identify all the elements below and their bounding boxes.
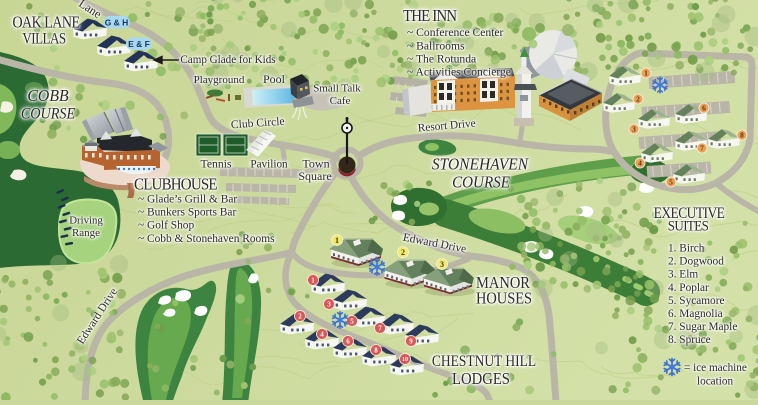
svg-text:6: 6 [346,338,350,346]
svg-text:2. Dogwood: 2. Dogwood [668,256,724,268]
svg-text:~ Ballrooms: ~ Ballrooms [407,40,465,53]
svg-text:G & H: G & H [105,17,129,27]
svg-text:COBB: COBB [27,85,68,105]
svg-text:SUITES: SUITES [668,219,708,235]
svg-text:= ice machine: = ice machine [684,362,747,374]
svg-text:Driving: Driving [69,215,103,227]
svg-text:6. Magnolia: 6. Magnolia [668,308,723,320]
svg-text:~ The Rotunda: ~ The Rotunda [407,53,476,66]
svg-text:~ Glade’s Grill & Bar: ~ Glade’s Grill & Bar [138,194,237,206]
svg-text:2: 2 [636,95,640,104]
svg-text:8. Spruce: 8. Spruce [668,334,711,346]
svg-text:8: 8 [740,131,744,140]
svg-text:~ Bunkers Sports Bar: ~ Bunkers Sports Bar [138,207,236,219]
svg-text:8: 8 [374,347,378,355]
svg-text:4. Poplar: 4. Poplar [668,282,709,294]
svg-text:7: 7 [700,144,704,153]
svg-text:COURSE: COURSE [21,106,75,123]
svg-text:~ Conference Center: ~ Conference Center [407,26,504,39]
svg-text:Square: Square [298,169,331,183]
svg-text:VILLAS: VILLAS [22,31,66,48]
svg-text:2: 2 [298,313,302,321]
svg-text:Cafe: Cafe [330,95,351,107]
svg-text:5. Sycamore: 5. Sycamore [668,295,724,307]
svg-text:COURSE: COURSE [452,174,510,192]
svg-text:1. Birch: 1. Birch [668,243,705,255]
svg-text:Camp Glade for Kids: Camp Glade for Kids [180,54,275,66]
svg-text:Tennis: Tennis [201,158,232,171]
svg-text:3: 3 [440,260,444,269]
svg-text:1: 1 [335,236,339,245]
svg-text:CHESTNUT HILL: CHESTNUT HILL [432,353,536,370]
svg-text:4: 4 [638,159,642,168]
svg-text:5: 5 [669,178,673,187]
svg-text:7: 7 [378,325,382,333]
svg-text:1: 1 [644,69,648,78]
svg-text:10: 10 [402,357,408,363]
svg-text:Pavilion: Pavilion [250,159,288,171]
svg-text:STONEHAVEN: STONEHAVEN [432,154,529,174]
svg-text:4: 4 [320,331,324,339]
svg-text:location: location [697,376,733,388]
svg-text:OAK LANE: OAK LANE [12,13,79,31]
svg-text:7. Sugar Maple: 7. Sugar Maple [668,321,737,333]
svg-text:Playground: Playground [194,74,245,86]
svg-text:~ Cobb & Stonehaven Rooms: ~ Cobb & Stonehaven Rooms [138,233,275,245]
svg-text:Range: Range [72,227,100,239]
svg-text:HOUSES: HOUSES [476,289,532,307]
svg-text:~ Activities Concierge: ~ Activities Concierge [407,66,511,79]
svg-text:Small Talk: Small Talk [313,83,361,95]
svg-text:2: 2 [401,248,405,257]
svg-text:3: 3 [632,125,636,134]
svg-text:6: 6 [702,104,706,113]
svg-text:5: 5 [350,318,354,326]
svg-text:1: 1 [311,277,315,285]
svg-text:3: 3 [327,301,331,309]
svg-text:E & F: E & F [128,39,150,49]
svg-text:9: 9 [409,338,413,346]
svg-text:3. Elm: 3. Elm [668,269,698,281]
svg-text:Pool: Pool [263,72,286,86]
svg-text:LODGES: LODGES [452,370,510,388]
svg-text:~ Golf Shop: ~ Golf Shop [138,220,194,232]
svg-text:CLUBHOUSE: CLUBHOUSE [134,176,218,194]
svg-text:THE INN: THE INN [403,7,457,25]
